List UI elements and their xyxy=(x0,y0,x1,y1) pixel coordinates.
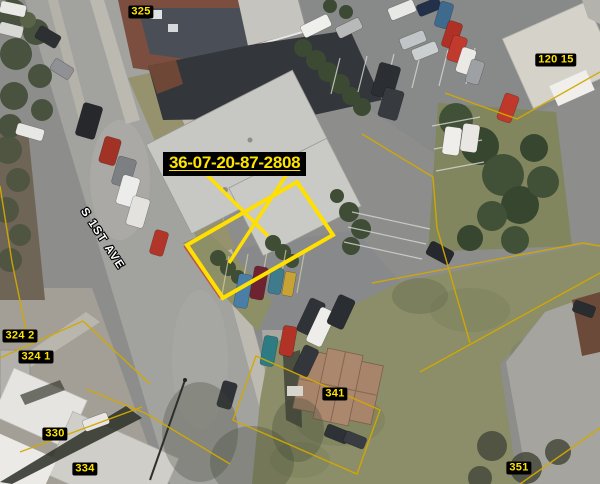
parcel-label-334: 334 xyxy=(72,463,97,476)
parcel-label-324-2: 324 2 xyxy=(2,330,37,343)
parcel-label-330: 330 xyxy=(42,428,67,441)
aerial-imagery xyxy=(0,0,600,484)
parcel-label-120-15: 120 15 xyxy=(535,54,576,67)
map-viewport[interactable]: 36-07-20-87-2808 S 1ST AVE 325 120 15 32… xyxy=(0,0,600,484)
parcel-label-325: 325 xyxy=(128,6,153,19)
selected-parcel-label: 36-07-20-87-2808 xyxy=(163,152,306,176)
parcel-label-341: 341 xyxy=(322,388,347,401)
parcel-label-351: 351 xyxy=(506,462,531,475)
parcel-label-324-1: 324 1 xyxy=(18,351,53,364)
